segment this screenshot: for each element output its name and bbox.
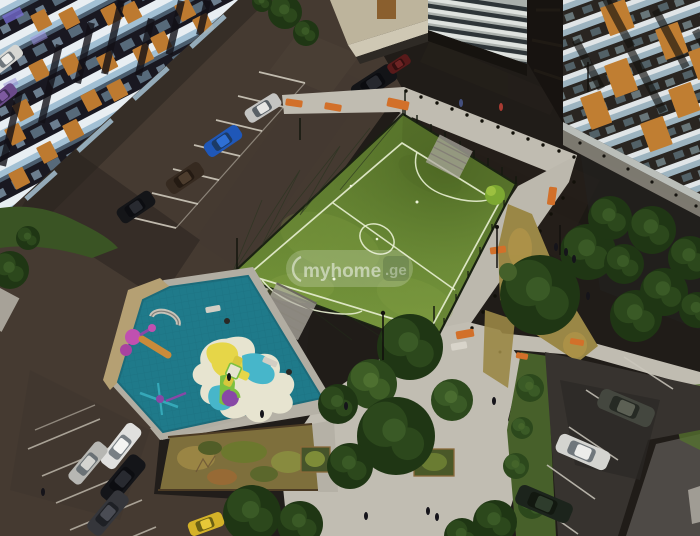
svg-text:.ge: .ge	[385, 262, 407, 279]
svg-text:myhome: myhome	[303, 261, 381, 282]
